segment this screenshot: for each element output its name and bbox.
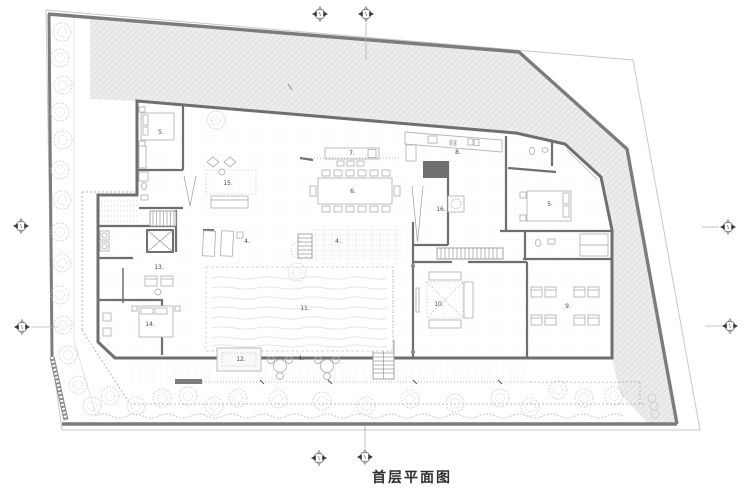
axis-marker-icon <box>312 6 328 22</box>
room-label: 6. <box>350 188 356 195</box>
planter-box <box>448 196 464 212</box>
shrub-band <box>95 414 623 418</box>
axis-marker-icon <box>13 218 29 234</box>
elevator-shaft <box>147 230 173 252</box>
column <box>411 350 415 354</box>
room-label: 14. <box>145 321 155 328</box>
room-label: 10. <box>434 301 444 308</box>
wall-pier <box>423 161 449 178</box>
brick-terrace <box>312 229 402 260</box>
room-label: 12. <box>236 356 246 363</box>
column <box>411 264 415 268</box>
axis-marker-icon <box>311 450 327 466</box>
courtyard <box>206 264 415 354</box>
axis-marker-icon <box>358 6 374 22</box>
drawing-title: 首层平面图 <box>372 467 452 487</box>
bed <box>520 191 571 221</box>
floor-plan-drawing: 5. 15. 7. 6. 8. 16. 5. 4. 4. 13. 14. 11.… <box>0 0 750 492</box>
room-label: 8. <box>455 149 461 156</box>
room-label: 4. <box>244 238 250 245</box>
axis-marker-icon <box>720 219 736 235</box>
room-label: 5. <box>158 129 164 136</box>
room-label: 4. <box>298 355 304 362</box>
room-label: 15. <box>223 180 233 187</box>
room-label: 7. <box>349 150 355 157</box>
south-terrace <box>262 362 530 384</box>
room-label: 13. <box>154 264 164 271</box>
axis-marker-icon <box>357 449 373 465</box>
room-label: 5. <box>547 201 553 208</box>
room-label: 11. <box>300 305 310 312</box>
room-label: 9. <box>565 303 571 310</box>
room-label: 4. <box>335 238 341 245</box>
floor-plan-page: 5. 15. 7. 6. 8. 16. 5. 4. 4. 13. 14. 11.… <box>0 0 750 492</box>
room-label: 16. <box>436 206 446 213</box>
axis-marker-icon <box>14 319 30 335</box>
axis-marker-icon <box>722 318 738 334</box>
garden-wall-stub <box>175 379 202 384</box>
